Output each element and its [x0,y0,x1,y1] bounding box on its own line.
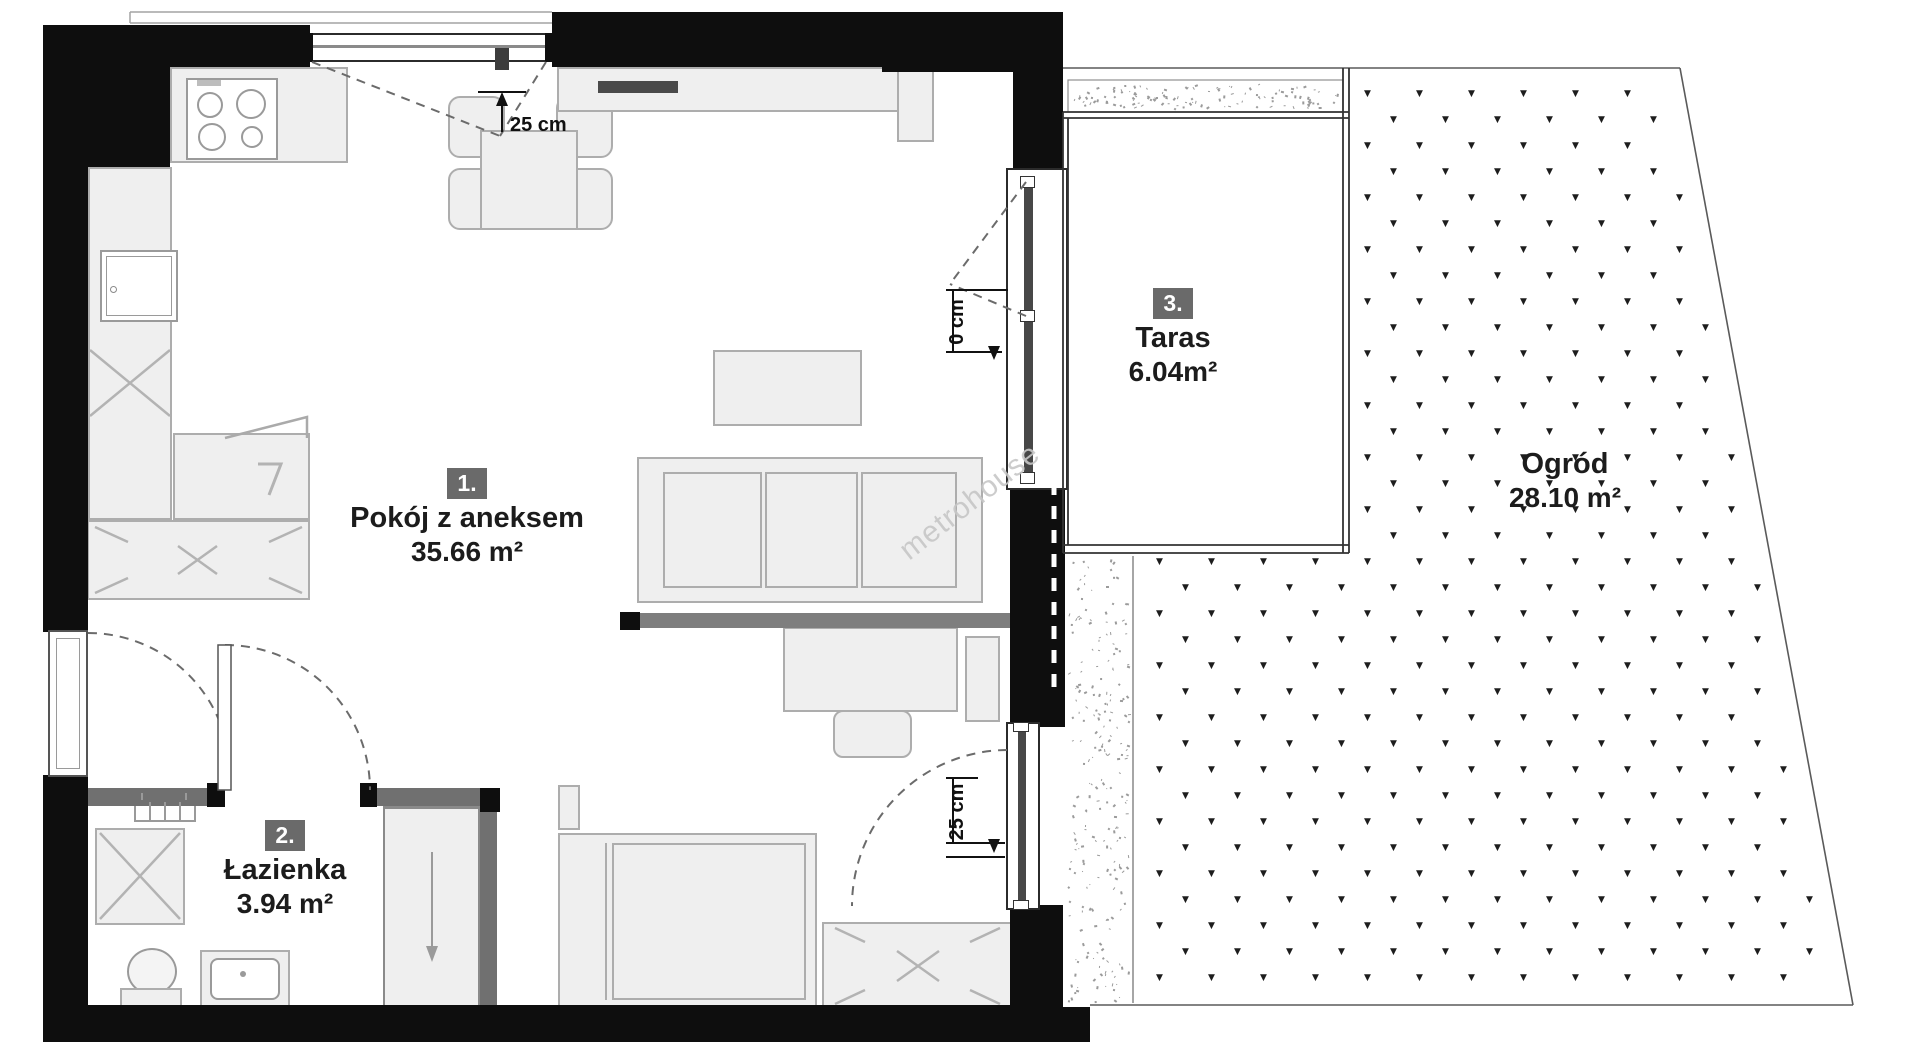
bathroom-door-leaf [218,645,231,790]
room-label-1: 1. Pokój z aneksem 35.66 m² [317,468,617,568]
sink-faucet-dot [240,971,246,977]
garden-area: 28.10 m² [1455,481,1675,514]
dim-top-window-label: 25 cm [510,114,567,136]
overhang-lines [130,12,552,23]
dim-balcony-door-label: 0 cm [946,299,968,345]
floor-plan: metrohouse [0,0,1920,1043]
room-area: 6.04m² [1068,355,1278,388]
room-area: 35.66 m² [317,535,617,568]
room-label-2: 2. Łazienka 3.94 m² [135,820,435,920]
room-name: Taras [1068,322,1278,355]
room-number-badge: 2. [265,820,304,851]
room-name: Pokój z aneksem [317,502,617,535]
garden-label: Ogród 28.10 m² [1455,448,1675,514]
garden-name: Ogród [1455,448,1675,481]
room-area: 3.94 m² [135,887,435,920]
room-number-badge: 1. [447,468,486,499]
room-label-3: 3. Taras 6.04m² [1068,288,1278,388]
room-number-badge: 3. [1153,288,1192,319]
garden-boundary [1063,68,1853,1005]
dim-bottom-window-label: 25 cm [946,784,968,841]
room-name: Łazienka [135,854,435,887]
